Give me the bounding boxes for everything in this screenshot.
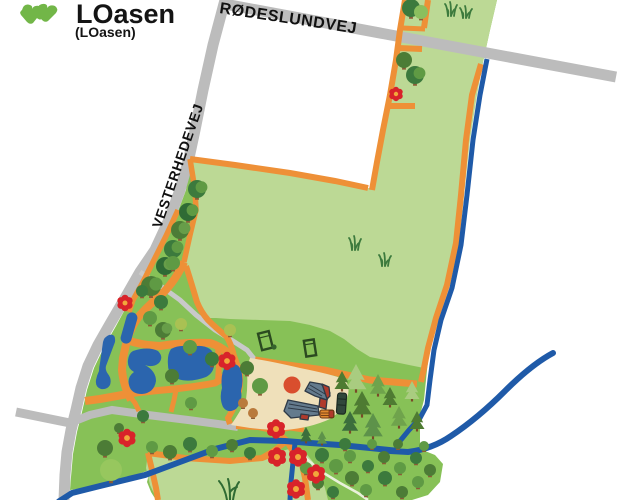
- svg-text:(LOasen): (LOasen): [75, 24, 136, 40]
